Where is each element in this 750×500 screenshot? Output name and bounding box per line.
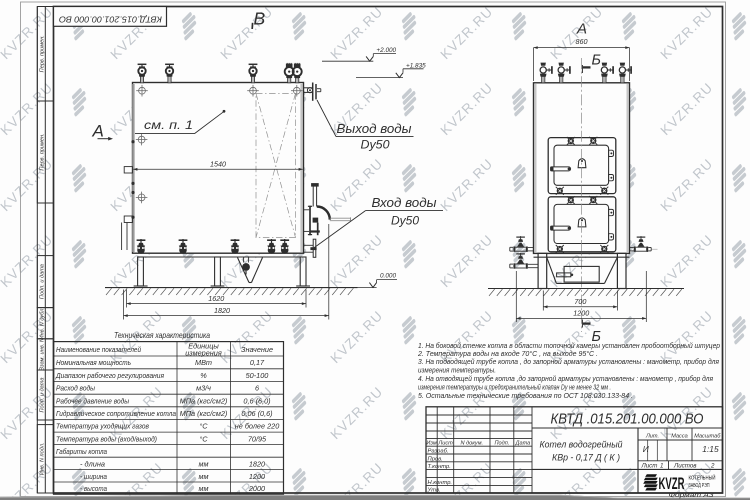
svg-text:И: И [643,444,649,454]
svg-text:мм: мм [198,459,208,468]
svg-text:0,17: 0,17 [250,358,265,367]
svg-text:5. Остальные технические треб: 5. Остальные технические требования по О… [418,391,633,400]
svg-text:Гидравлическое сопротивление к: Гидравлическое сопротивление котла [56,409,176,418]
svg-text:Номинальная мощность: Номинальная мощность [56,358,131,367]
svg-text:Подп.: Подп. [494,440,509,446]
svg-text:Листов: Листов [673,462,697,469]
svg-text:Лист: Лист [641,462,658,469]
svg-text:Взам. инв. N: Взам. инв. N [40,337,46,371]
svg-text:Инв. N подл.: Инв. N подл. [40,442,46,475]
svg-text:0,06 (0,6): 0,06 (0,6) [241,409,272,418]
svg-text:Утв.: Утв. [427,488,441,494]
svg-text:1200: 1200 [249,472,265,481]
svg-text:°С: °С [199,422,208,431]
svg-text:Dy50: Dy50 [391,214,419,228]
svg-text:Техническая характеристика: Техническая характеристика [114,331,210,340]
svg-text:МВт: МВт [195,358,212,367]
svg-text:%: % [200,371,207,380]
svg-text:N докум.: N докум. [460,440,483,446]
svg-text:Dy50: Dy50 [361,138,390,152]
svg-text:860: 860 [576,37,588,46]
svg-text:1:15: 1:15 [702,444,719,454]
svg-text:КВр - 0,17 Д ( К ): КВр - 0,17 Д ( К ) [552,452,620,463]
svg-text:мм: мм [198,472,208,481]
svg-text:КОТЕЛЬНЫЙ: КОТЕЛЬНЫЙ [689,474,716,482]
svg-text:Котел водогрейный: Котел водогрейный [540,439,624,450]
svg-text:Лит.: Лит. [645,433,659,439]
svg-text:°С: °С [199,434,208,443]
svg-text:50-100: 50-100 [246,371,269,380]
svg-text:1540: 1540 [210,159,226,168]
svg-text:Рабочее давление воды: Рабочее давление воды [56,396,130,405]
svg-text:МПа (кгс/см2): МПа (кгс/см2) [180,409,228,418]
svg-text:Пров.: Пров. [428,456,443,462]
svg-text:Подп. и дата: Подп. и дата [40,377,46,412]
svg-text:0.000: 0.000 [380,273,396,280]
svg-text:Значение: Значение [241,345,273,354]
svg-text:Формат А3: Формат А3 [669,492,714,499]
svg-text:Вход воды: Вход воды [372,196,437,210]
svg-text:Перв. примен.: Перв. примен. [40,133,46,170]
svg-text:Температура уходящих газов: Температура уходящих газов [56,422,149,431]
svg-text:- ширина: - ширина [80,472,107,481]
svg-text:1820: 1820 [249,459,265,468]
svg-text:1620: 1620 [208,294,224,303]
svg-text:не более 220: не более 220 [235,422,280,431]
svg-text:Диапазон рабочего регулировани: Диапазон рабочего регулирования [55,371,164,380]
svg-text:Разраб.: Разраб. [428,449,449,455]
svg-text:см. п. 1: см. п. 1 [144,120,193,132]
svg-text:2000: 2000 [248,484,265,493]
svg-text:Наименование показателей: Наименование показателей [56,345,141,354]
svg-text:ЗАВОД РЭП: ЗАВОД РЭП [689,483,710,489]
svg-text:Б: Б [592,52,601,68]
svg-text:Масса: Масса [671,433,688,439]
svg-text:Т.контр.: Т.контр. [428,464,451,470]
svg-text:м3/ч: м3/ч [196,384,211,393]
svg-text:Габариты котла: Габариты котла [56,447,107,456]
svg-text:Масштаб: Масштаб [694,433,721,439]
svg-text:70/95: 70/95 [248,434,267,443]
svg-text:КВТД .015.201.00.000 ВО: КВТД .015.201.00.000 ВО [551,411,704,428]
svg-text:- длина: - длина [80,459,105,468]
svg-text:Подп. и дата: Подп. и дата [40,264,46,299]
svg-text:0,6 (6,0): 0,6 (6,0) [243,396,270,405]
svg-text:700: 700 [574,297,586,306]
svg-text:2: 2 [710,462,715,469]
svg-text:1: 1 [660,462,663,469]
svg-text:В: В [254,8,266,28]
svg-text:Лист: Лист [437,440,453,446]
svg-text:Н.контр.: Н.контр. [428,480,453,486]
svg-text:Выход воды: Выход воды [337,122,412,136]
svg-text:А: А [576,20,587,37]
svg-text:- высота: - высота [80,484,107,493]
svg-text:Расход воды: Расход воды [56,384,96,393]
svg-text:KVZR: KVZR [659,475,685,493]
svg-text:+2.000: +2.000 [376,47,396,54]
svg-text:А: А [92,122,104,141]
svg-text:1200: 1200 [573,309,589,318]
svg-text:Инв. N дубл.: Инв. N дубл. [40,307,46,339]
svg-text:КВТД.015.201.00.000 ВО: КВТД.015.201.00.000 ВО [58,15,162,25]
svg-text:Температура воды (вход/выход): Температура воды (вход/выход) [56,434,157,443]
svg-text:Перв. примен.: Перв. примен. [40,35,46,72]
svg-text:измерения: измерения [185,348,222,357]
svg-text:+1.835: +1.835 [406,62,426,69]
svg-text:4. На отводящей трубе котла ,: 4. На отводящей трубе котла ,до запорной… [418,374,713,383]
svg-text:мм: мм [198,484,208,493]
svg-text:Изм: Изм [426,440,437,446]
svg-text:Дата: Дата [515,440,531,446]
svg-text:МПа (кгс/см2): МПа (кгс/см2) [180,396,228,405]
svg-text:1820: 1820 [214,306,230,315]
